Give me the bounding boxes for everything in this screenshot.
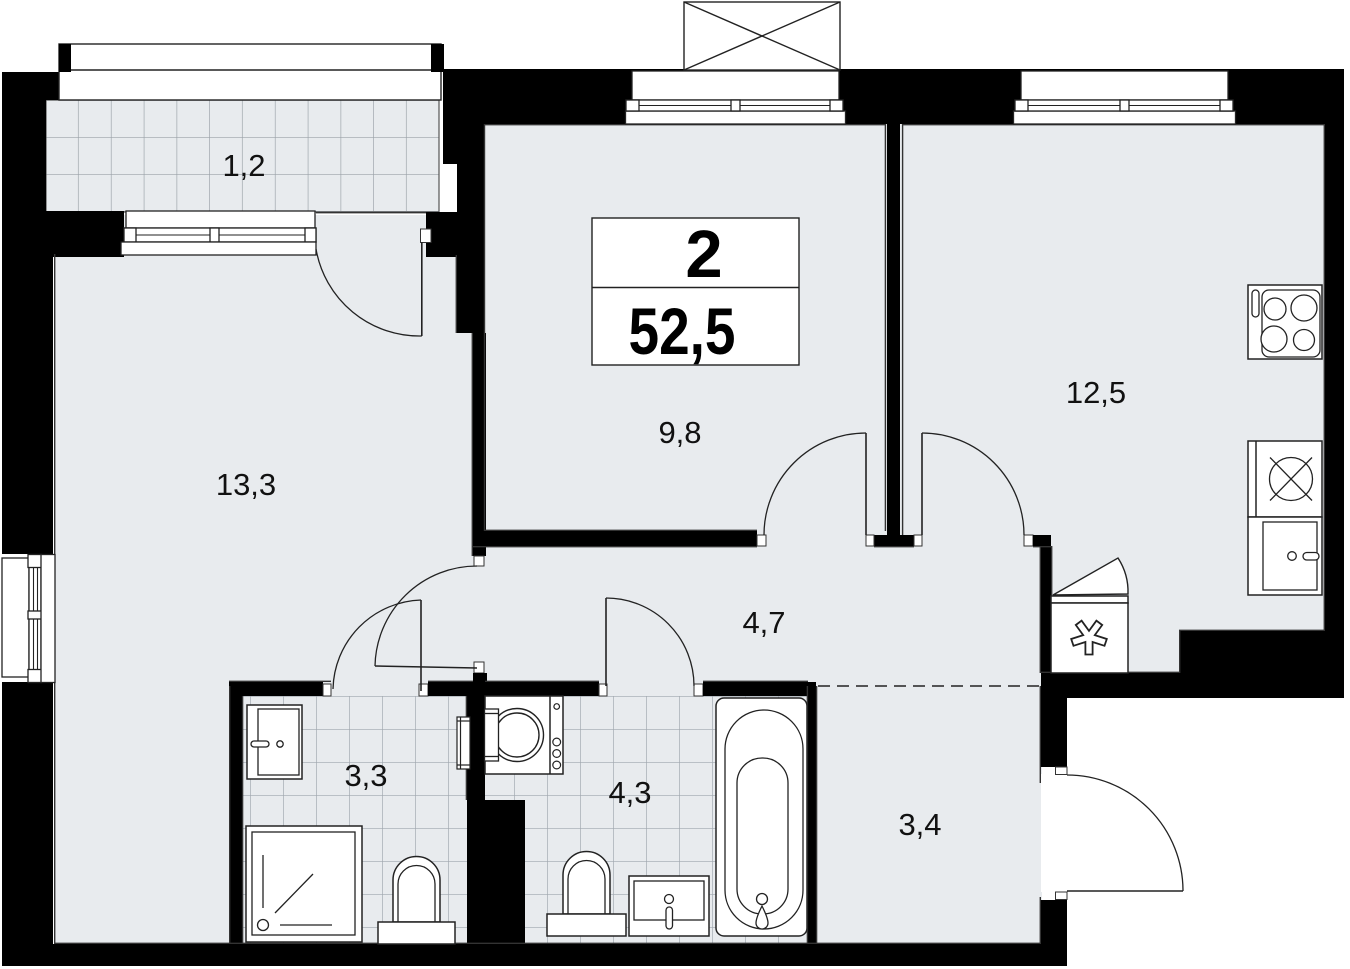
svg-text:4,7: 4,7: [742, 605, 785, 640]
svg-text:13,3: 13,3: [216, 467, 276, 502]
svg-text:2: 2: [685, 217, 722, 292]
svg-text:3,4: 3,4: [898, 807, 941, 842]
svg-text:3,3: 3,3: [344, 758, 387, 793]
svg-text:4,3: 4,3: [608, 775, 651, 810]
svg-text:12,5: 12,5: [1066, 375, 1126, 410]
svg-text:9,8: 9,8: [658, 415, 701, 450]
svg-text:52,5: 52,5: [629, 294, 736, 368]
svg-text:1,2: 1,2: [222, 148, 265, 183]
